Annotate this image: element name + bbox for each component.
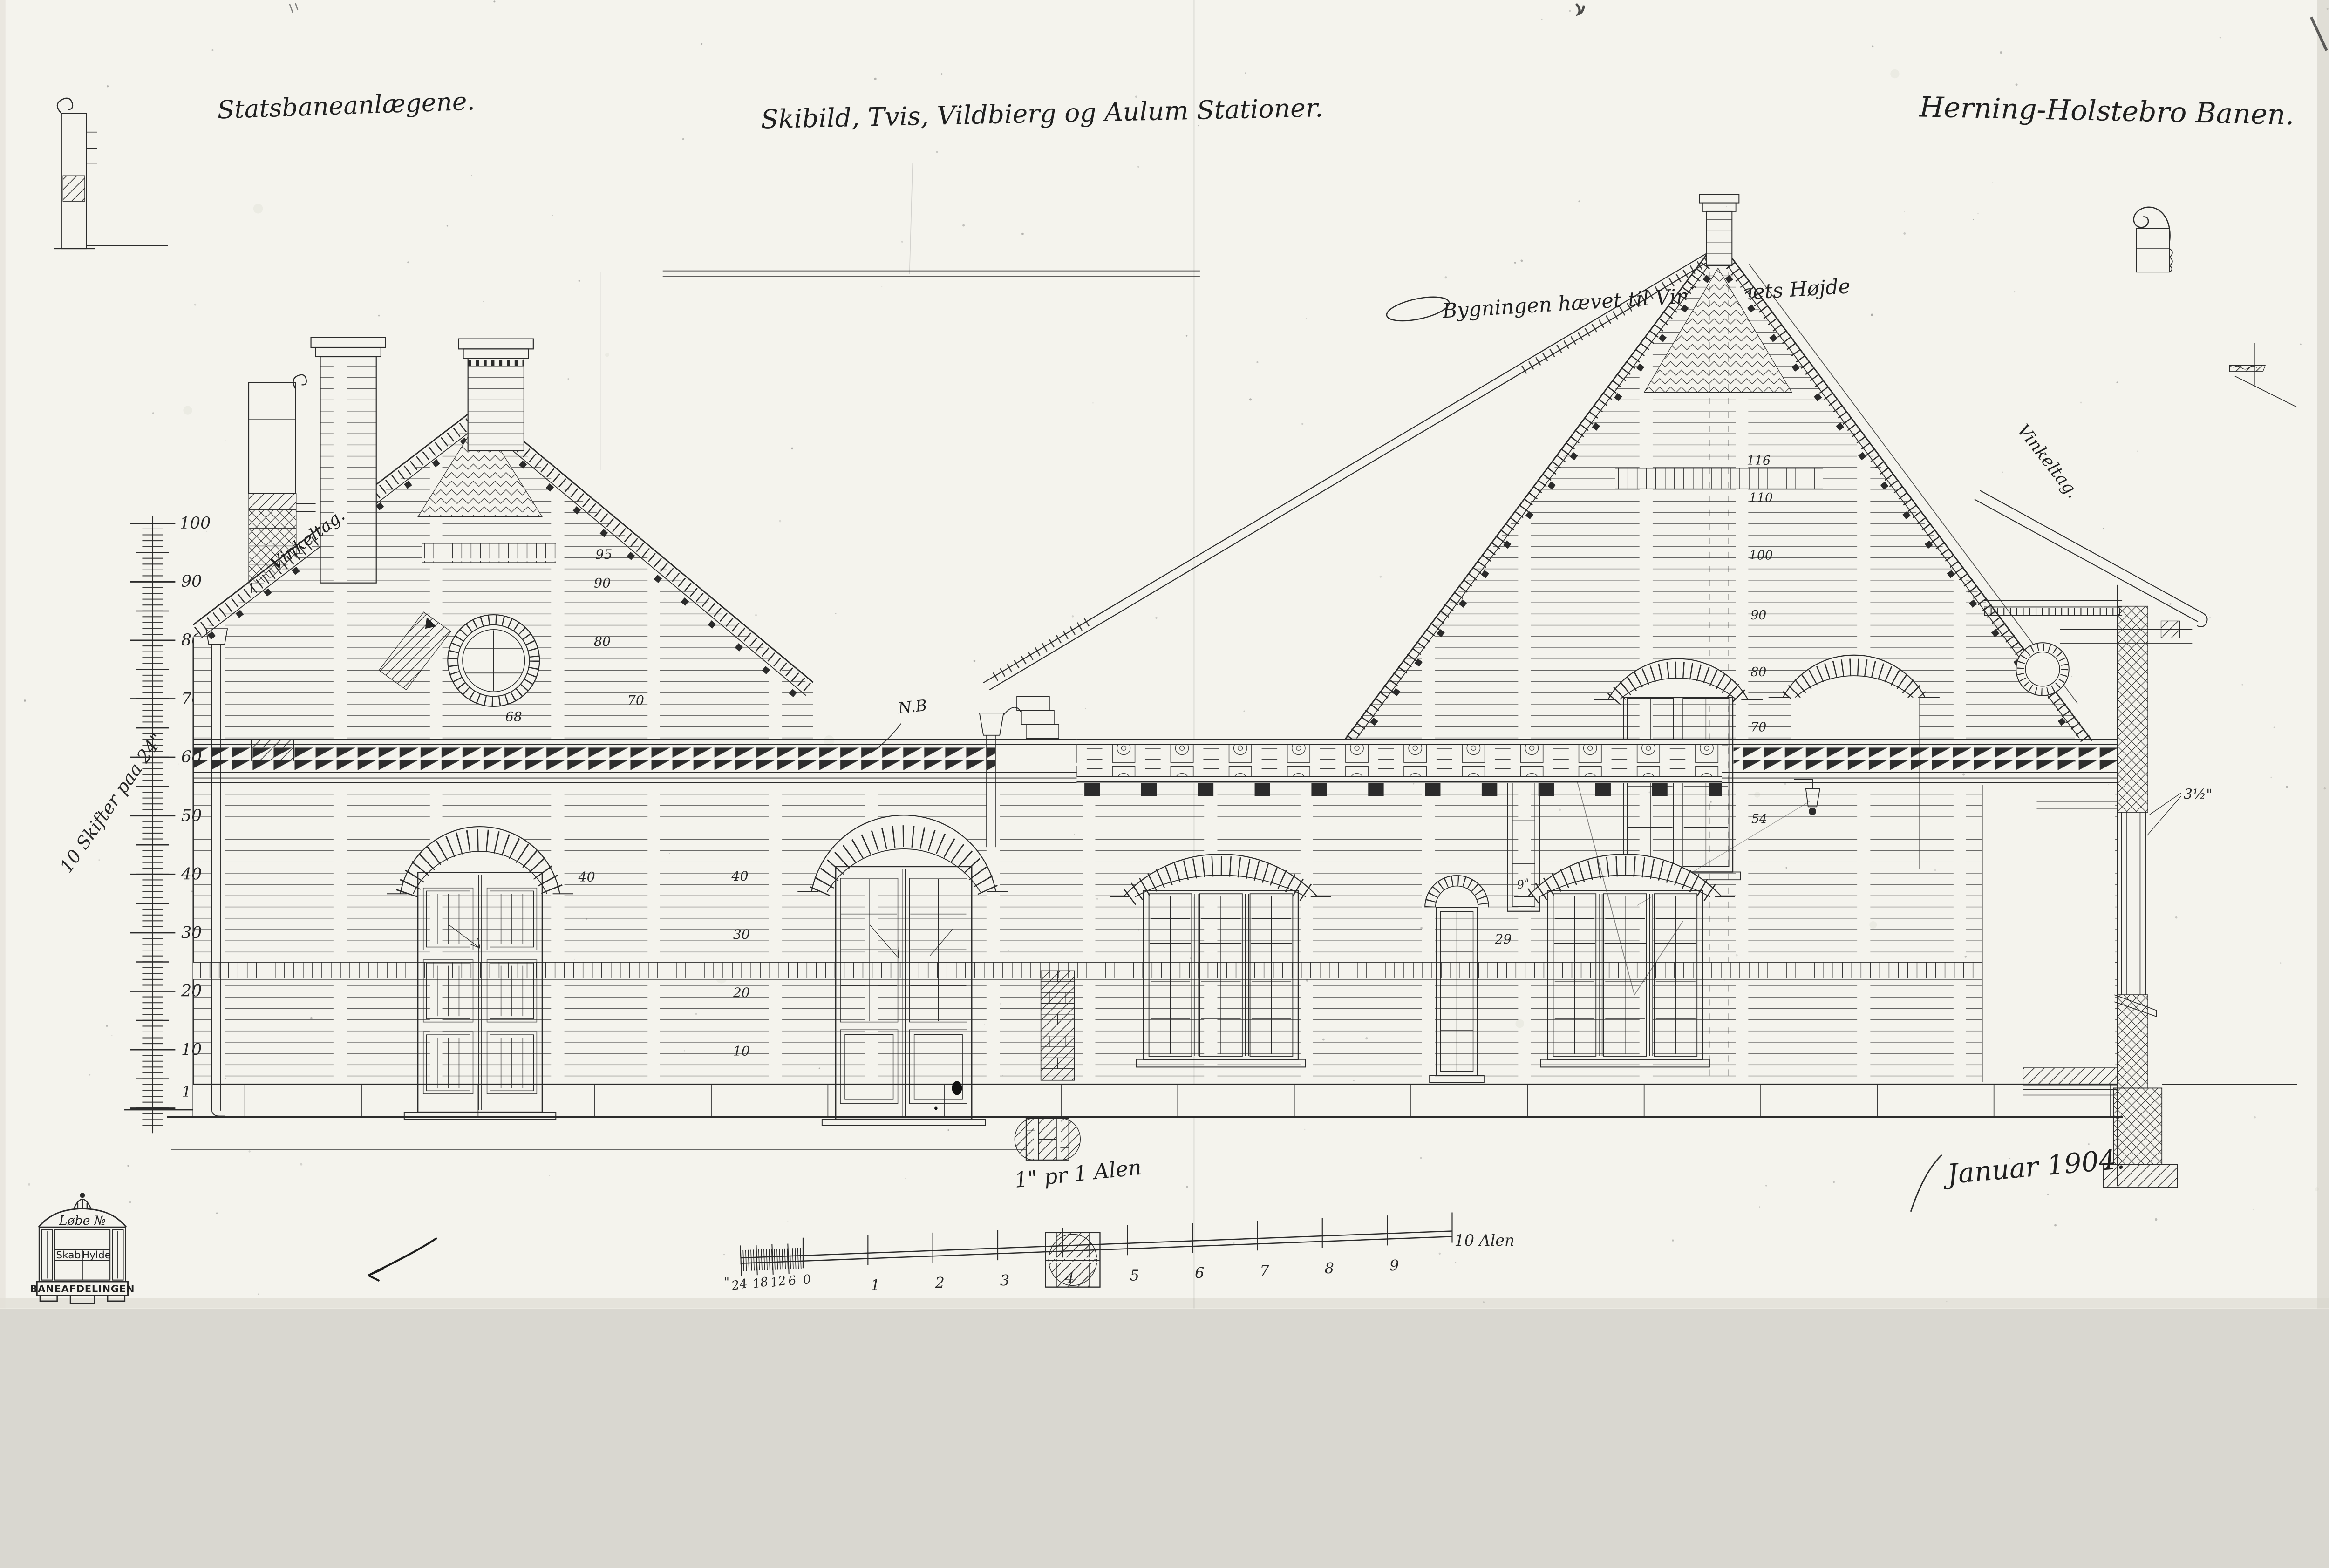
sawtooth-cornice-right [1734,746,2118,770]
ruler-label: 100 [180,514,211,533]
course-number: 29 [1494,931,1512,947]
course-number: 100 [1749,549,1773,563]
course-number: 90 [1750,608,1766,623]
course-number: 80 [1750,665,1766,679]
course-number: 116 [1747,454,1771,468]
stamp-footer: BANEAFDELINGEN [30,1283,135,1295]
course-number: 10 [733,1043,750,1059]
scale-label: 1 [871,1277,880,1294]
course-number: 20 [733,985,750,1000]
scale-label: 3 [1000,1272,1009,1289]
stamp-cell-skab: Skab [56,1249,81,1261]
course-number: 70 [1750,720,1766,734]
stamp-header: Løbe № [59,1214,106,1228]
course-number: 95 [595,547,612,562]
scale-label: 18 [751,1275,770,1291]
ruler-label: 90 [181,572,202,591]
ink-blot [952,1081,962,1095]
course-number: 110 [1749,491,1773,505]
dimension-label: 3½" [2184,787,2213,803]
ruler-label: 1 [182,1084,191,1100]
round-gable-window [448,615,539,706]
course-number: 30 [733,927,750,942]
scale-label: 24 [730,1276,749,1294]
scanned-architectural-drawing: Statsbaneanlægene. Skibild, Tvis, Vildbi… [0,0,2329,1309]
scale-label: 2 [935,1275,945,1291]
course-number: 70 [627,693,644,708]
scale-label: 10 Alen [1454,1231,1514,1249]
annotation-nb: N.B [897,696,928,717]
scale-label: 12 [769,1273,787,1290]
detail-block-upper [1015,1119,1080,1160]
blank-wall-area [1982,785,2115,1082]
scale-label: 9 [1389,1258,1399,1275]
stamp-cell-hylde: Hylde [82,1249,111,1261]
course-number: 40 [731,869,748,884]
scale-label: 6 [1195,1265,1204,1282]
course-number: 80 [594,634,611,649]
scale-label: " [724,1275,729,1290]
course-number: 40 [578,869,595,885]
chimney-left [311,337,386,583]
scale-label: 7 [1260,1263,1269,1279]
console-cornice [1076,739,1722,789]
course-number: 68 [505,709,522,725]
scale-label: 5 [1130,1267,1139,1284]
round-window-right [2016,643,2069,695]
course-number: 90 [594,576,611,591]
scale-label: 8 [1325,1260,1334,1277]
brick-bond-patch [1041,971,1075,1080]
